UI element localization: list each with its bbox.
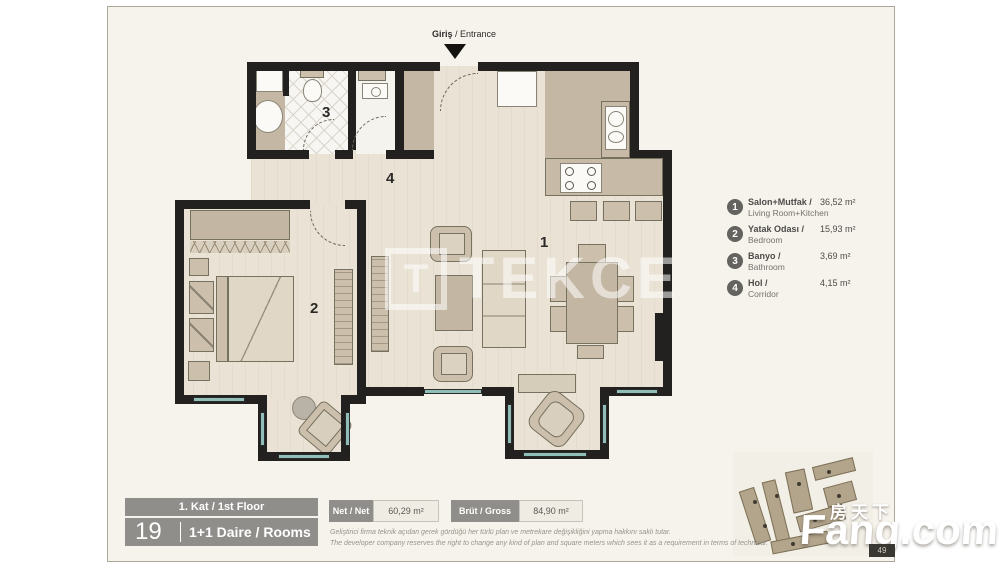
legend-subtitle: Bathroom	[748, 262, 785, 272]
gross-label: Brüt / Gross	[451, 500, 519, 522]
legend-row: 1 Salon+Mutfak / 36,52 m² Living Room+Ki…	[727, 197, 887, 224]
unit-info-bar: 19 1+1 Daire / Rooms	[125, 518, 318, 546]
bar-stool	[570, 201, 597, 221]
burner	[587, 181, 596, 190]
wall-segment	[247, 150, 309, 159]
window	[260, 412, 265, 446]
washer-door	[371, 87, 381, 97]
washing-machine	[362, 83, 388, 99]
dining-chair	[577, 345, 604, 359]
legend-number-badge: 4	[727, 280, 743, 296]
window	[278, 454, 330, 459]
wall-segment	[335, 150, 353, 159]
legend-title: Salon+Mutfak /	[748, 197, 812, 207]
wall-segment	[630, 62, 639, 158]
room-label-bath: 3	[322, 104, 330, 121]
legend-row: 2 Yatak Odası / 15,93 m² Bedroom	[727, 224, 887, 251]
site-block	[812, 457, 856, 481]
wall-segment	[341, 395, 366, 404]
toilet-bowl	[303, 79, 322, 102]
site-dot	[753, 500, 757, 504]
hall-closet	[404, 66, 434, 154]
legend-number-badge: 1	[727, 199, 743, 215]
site-dot	[797, 482, 801, 486]
window	[507, 404, 512, 444]
double-bed	[228, 276, 294, 362]
burner	[565, 167, 574, 176]
net-label: Net / Net	[329, 500, 373, 522]
tekce-logo-icon: T	[385, 248, 447, 310]
room-label-hall: 4	[386, 170, 394, 187]
legend-subtitle: Corridor	[748, 289, 779, 299]
kitchen-sink	[605, 106, 627, 150]
floor-label: 1. Kat / 1st Floor	[179, 501, 265, 513]
toilet-tank	[300, 70, 324, 78]
unit-number: 19	[135, 518, 180, 546]
sink-bowl	[608, 131, 624, 143]
burner	[587, 167, 596, 176]
wall-segment	[175, 200, 184, 404]
entrance-label-tr: Giriş	[432, 29, 453, 39]
nightstand	[189, 318, 214, 352]
bedroom-dresser	[188, 361, 210, 381]
window	[523, 452, 587, 457]
wall-stub	[283, 62, 289, 96]
window	[345, 412, 350, 446]
burner	[565, 181, 574, 190]
wall-divider	[357, 200, 366, 396]
nightstand	[189, 281, 214, 314]
fridge	[497, 71, 537, 107]
armchair	[433, 346, 473, 382]
bedroom-dresser	[189, 258, 209, 276]
bath-niche-recess	[256, 70, 283, 92]
bedroom-radiator	[334, 269, 353, 365]
wardrobe	[190, 210, 290, 240]
legend-title: Hol /	[748, 278, 768, 288]
floor-label-bar: 1. Kat / 1st Floor	[125, 498, 318, 516]
tekce-logo-text: TEKCE	[459, 250, 681, 308]
wall-segment	[386, 150, 434, 159]
legend-subtitle: Living Room+Kitchen	[748, 208, 829, 218]
entrance-label-sep: /	[452, 29, 460, 39]
disclaimer-line-tr: Geliştirici firma teknik açıdan gerek gö…	[330, 529, 671, 536]
legend-row: 3 Banyo / 3,69 m² Bathroom	[727, 251, 887, 278]
divider	[180, 522, 181, 542]
site-dot	[827, 470, 831, 474]
fang-logo-watermark: Fang.com	[798, 506, 1000, 554]
stove	[560, 163, 602, 193]
site-dot	[763, 524, 767, 528]
legend-area: 15,93 m²	[820, 224, 856, 234]
armchair-seat	[441, 353, 467, 375]
wall-segment	[247, 62, 256, 159]
site-dot	[775, 494, 779, 498]
entrance-label: Giriş / Entrance	[404, 29, 524, 39]
wall-segment	[247, 62, 440, 71]
window	[424, 389, 482, 394]
legend-area: 3,69 m²	[820, 251, 851, 261]
window	[616, 389, 658, 394]
unit-type-label: 1+1 Daire / Rooms	[189, 524, 311, 540]
wall-segment	[478, 62, 639, 71]
wardrobe-hangers	[190, 241, 290, 253]
shower-shelf	[358, 70, 386, 81]
wall-segment	[395, 64, 404, 150]
legend-area: 4,15 m²	[820, 278, 851, 288]
site-dot	[791, 542, 795, 546]
disclaimer-line-en: The developer company reserves the right…	[330, 540, 768, 547]
entrance-arrow-icon	[444, 44, 466, 59]
legend-row: 4 Hol / 4,15 m² Corridor	[727, 278, 887, 305]
ottoman	[518, 374, 576, 393]
legend-area: 36,52 m²	[820, 197, 856, 207]
gross-value: 84,90 m²	[519, 500, 583, 522]
net-value: 60,29 m²	[373, 500, 439, 522]
legend-title: Banyo /	[748, 251, 781, 261]
bar-stool	[603, 201, 630, 221]
sink-bowl	[608, 111, 624, 127]
window	[602, 404, 607, 444]
washbasin	[253, 100, 283, 133]
entrance-label-en: Entrance	[460, 29, 496, 39]
bed-headboard	[216, 276, 228, 362]
fang-badge: 49	[869, 544, 895, 557]
bar-stool	[635, 201, 662, 221]
wall-segment	[366, 387, 424, 396]
room-label-bedroom: 2	[310, 300, 318, 317]
floorplan-page: 1 2 3 4 Giriş / Entrance T TEKCE 1 Salon…	[0, 0, 1000, 571]
window	[193, 397, 245, 402]
legend-title: Yatak Odası /	[748, 224, 804, 234]
tekce-logo-letter: T	[404, 257, 428, 302]
legend-number-badge: 2	[727, 226, 743, 242]
wall-segment	[175, 200, 310, 209]
legend-subtitle: Bedroom	[748, 235, 783, 245]
wall-pier	[655, 313, 672, 361]
legend-number-badge: 3	[727, 253, 743, 269]
lounge-seat	[535, 398, 577, 440]
chair-seat	[306, 409, 344, 447]
tekce-watermark: T TEKCE	[385, 248, 681, 310]
